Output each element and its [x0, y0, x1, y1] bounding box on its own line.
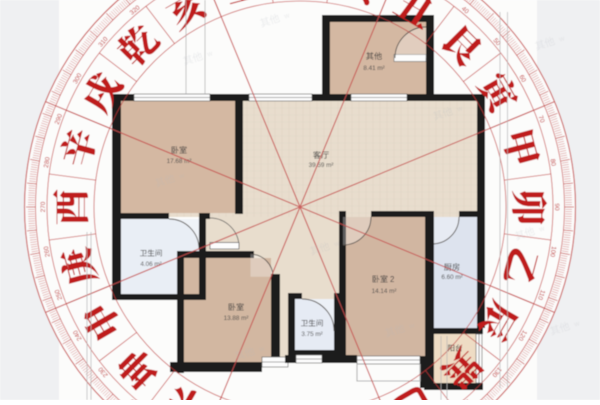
- svg-text:39.59 m²: 39.59 m²: [309, 162, 334, 169]
- svg-text:13.88 m²: 13.88 m²: [224, 315, 249, 322]
- svg-text:270: 270: [40, 201, 47, 212]
- svg-text:4.06 m²: 4.06 m²: [140, 261, 161, 268]
- svg-text:17.68 m²: 17.68 m²: [167, 158, 192, 165]
- svg-text:8.41 m²: 8.41 m²: [363, 65, 384, 72]
- svg-text:3.75 m²: 3.75 m²: [301, 331, 322, 338]
- svg-text:90: 90: [553, 203, 560, 211]
- svg-text:6.60 m²: 6.60 m²: [441, 274, 462, 281]
- svg-text:2: 2: [390, 275, 394, 284]
- svg-text:14.14 m²: 14.14 m²: [372, 288, 397, 295]
